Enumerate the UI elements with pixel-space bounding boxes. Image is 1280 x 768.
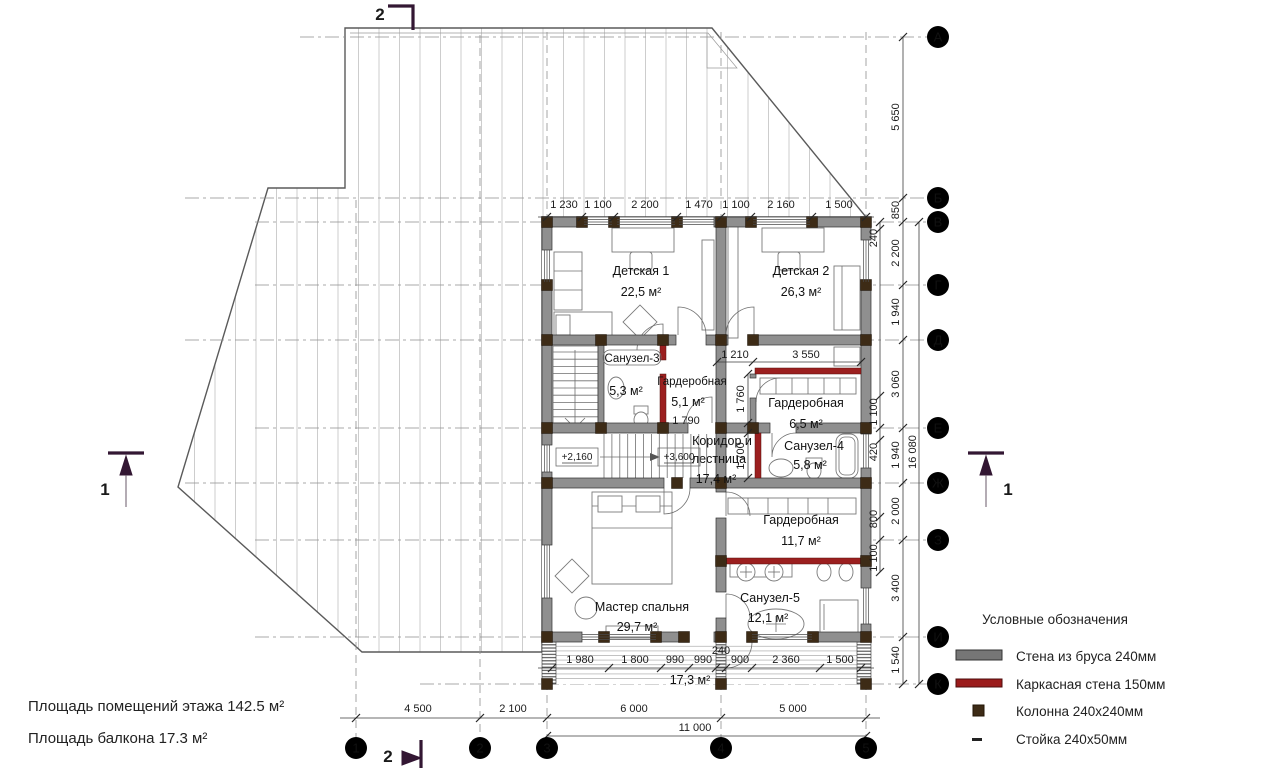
- column-240: [716, 423, 727, 434]
- room-area: 11,7 м²: [781, 534, 821, 548]
- column-240: [861, 679, 872, 690]
- room-label: Гардеробная: [763, 513, 839, 527]
- dim-label: 1 210: [721, 349, 749, 361]
- room-area: 29,7 м²: [617, 620, 658, 634]
- axis-bubble: 3: [536, 737, 558, 759]
- balcony-rail-left: [542, 642, 556, 684]
- column-240: [542, 478, 553, 489]
- column-240: [861, 217, 872, 228]
- dim-label: 2 200: [890, 239, 902, 267]
- area-notes: Площадь помещений этажа 142.5 м² Площадь…: [28, 698, 284, 747]
- dim-label: 240: [868, 229, 880, 247]
- axis-label: 3: [543, 741, 550, 756]
- column-240: [672, 478, 683, 489]
- wardrobe: [554, 252, 582, 310]
- room-label: Гардеробная: [657, 376, 727, 388]
- pillow: [556, 315, 570, 335]
- sofa: [834, 266, 860, 330]
- dim-label: 1 470: [685, 199, 713, 211]
- room-area: 6,5 м²: [789, 417, 823, 431]
- legend-item-label: Каркасная стена 150мм: [1016, 677, 1165, 692]
- section-marker-top: 2: [375, 5, 413, 30]
- section-label: 1: [1003, 480, 1012, 499]
- cabinet: [834, 347, 860, 366]
- toilet: [817, 563, 831, 581]
- axis-bubble: Ж: [927, 472, 949, 494]
- axis-column-bubbles: 1 2 3 4 5: [345, 737, 877, 759]
- column-240: [679, 632, 690, 643]
- dim-label: 900: [731, 654, 749, 666]
- shelf: [702, 240, 714, 330]
- dim-label: 1 980: [566, 654, 594, 666]
- axis-label: Г: [934, 278, 941, 293]
- room-area: 22,5 м²: [621, 285, 662, 299]
- room-area: 5,3 м²: [609, 384, 643, 398]
- room-area: 17,4 м²: [696, 472, 737, 486]
- dim-label: 2 200: [631, 199, 659, 211]
- section-marker-left: 1: [100, 453, 144, 507]
- axis-bubble: Е: [927, 417, 949, 439]
- desk: [762, 228, 824, 252]
- column-240: [861, 632, 872, 643]
- room-area: 5,1 м²: [671, 395, 705, 409]
- column-240: [716, 335, 727, 346]
- dim-label: 1 500: [826, 654, 854, 666]
- dim-label: 850: [890, 201, 902, 219]
- axis-bubble: 4: [710, 737, 732, 759]
- section-label: 2: [383, 747, 392, 766]
- column-240: [861, 335, 872, 346]
- closet-shelves: [728, 498, 856, 514]
- axis-label: Е: [934, 421, 943, 436]
- note-text: Площадь помещений этажа 142.5 м²: [28, 698, 284, 715]
- room-label: Санузел-3: [604, 353, 659, 365]
- round-table: [575, 597, 597, 619]
- dim-label: 990: [666, 654, 684, 666]
- dim-label: 16 080: [907, 435, 919, 469]
- room-label: Гардеробная: [768, 396, 844, 410]
- axis-label: Б: [934, 191, 943, 206]
- axis-label: В: [934, 215, 943, 230]
- legend-title: Условные обозначения: [982, 612, 1128, 627]
- axis-label: И: [933, 630, 942, 645]
- room-label: Детская 2: [773, 264, 830, 278]
- axis-label: 2: [476, 741, 483, 756]
- column-240: [716, 556, 727, 567]
- axis-label: З: [934, 533, 942, 548]
- dim-label: 1 230: [550, 199, 578, 211]
- elevation-label: +3,600: [664, 452, 695, 463]
- column-240: [542, 679, 553, 690]
- dim-label: 2 000: [890, 497, 902, 525]
- section-label: 1: [100, 480, 109, 499]
- timber-wall-swatch: [956, 650, 1002, 660]
- dim-label: 2 360: [772, 654, 800, 666]
- column-swatch: [973, 705, 984, 716]
- axis-bubble: 5: [855, 737, 877, 759]
- dim-label: 240: [712, 645, 730, 657]
- dim-label: 6 000: [620, 703, 648, 715]
- dim-label: 3 400: [890, 574, 902, 602]
- dim-label: 800: [868, 510, 880, 528]
- dim-label: 3 550: [792, 349, 820, 361]
- room-label: Санузел-4: [784, 439, 844, 453]
- dim-label: 1 100: [722, 199, 750, 211]
- dim-label: 5 000: [779, 703, 807, 715]
- axis-bubble: З: [927, 529, 949, 551]
- dim-label: 1 540: [890, 646, 902, 674]
- dim-label: 2 160: [767, 199, 795, 211]
- room-area: 26,3 м²: [781, 285, 822, 299]
- axis-label: 5: [862, 741, 869, 756]
- axis-label: К: [934, 677, 942, 692]
- column-240: [748, 335, 759, 346]
- dim-label: 3 060: [890, 370, 902, 398]
- legend-item-label: Стойка 240x50мм: [1016, 732, 1127, 747]
- dim-label: 5 650: [890, 103, 902, 131]
- column-240: [542, 217, 553, 228]
- dim-label: 1 940: [890, 298, 902, 326]
- column-240: [542, 335, 553, 346]
- dim-label: 1 500: [825, 199, 853, 211]
- section-marker-right: 1: [968, 453, 1013, 507]
- legend-item-label: Стена из бруса 240мм: [1016, 649, 1156, 664]
- column-240: [658, 335, 669, 346]
- column-240: [542, 423, 553, 434]
- axis-bubble: 1: [345, 737, 367, 759]
- pillow: [636, 496, 660, 512]
- axis-bubble: 2: [469, 737, 491, 759]
- room-note: 1 790: [672, 415, 700, 427]
- legend: Условные обозначения Стена из бруса 240м…: [956, 612, 1165, 747]
- stand-swatch: [972, 738, 982, 741]
- axis-label: Д: [934, 333, 943, 348]
- section-label: 2: [375, 5, 384, 24]
- room-label: Санузел-5: [740, 591, 800, 605]
- column-240: [596, 423, 607, 434]
- room-area: 5,8 м²: [793, 458, 827, 472]
- balcony-area: 17,3 м²: [670, 673, 711, 687]
- axis-bubble: И: [927, 626, 949, 648]
- right-dimension-chain: 5 650 850 2 200 1 940 3 060 1 940 2 000 …: [868, 103, 919, 674]
- section-marker-bottom: 2: [383, 740, 421, 768]
- balcony-rail-right: [857, 642, 871, 684]
- dim-label: 990: [694, 654, 712, 666]
- room-label: Детская 1: [613, 264, 670, 278]
- dim-label: 420: [868, 443, 880, 461]
- column-240: [716, 679, 727, 690]
- dim-label: 4 500: [404, 703, 432, 715]
- legend-item-label: Колонна 240x240мм: [1016, 704, 1143, 719]
- bidet: [839, 563, 853, 581]
- dim-label: 2 100: [499, 703, 527, 715]
- axis-bubble: К: [927, 673, 949, 695]
- axis-bubble: Г: [927, 274, 949, 296]
- dim-label: 1 800: [621, 654, 649, 666]
- axis-label: 1: [352, 741, 359, 756]
- column-240: [716, 632, 727, 643]
- column-240: [658, 423, 669, 434]
- room-label: Коридор и: [692, 434, 752, 448]
- sink: [769, 459, 793, 477]
- dim-label: 1 940: [890, 441, 902, 469]
- shower: [820, 600, 858, 634]
- axis-row-bubbles: А Б В Г Д Е Ж З И К: [927, 26, 949, 695]
- pillow: [598, 496, 622, 512]
- desk: [612, 228, 674, 252]
- axis-label: А: [934, 30, 943, 45]
- floor-plan-drawing: 1 210 3 550 1 760 1 700 Детская 1 22,5 м…: [0, 0, 1280, 768]
- dim-label: 1 100: [584, 199, 612, 211]
- axis-bubble: В: [927, 211, 949, 233]
- axis-label: Ж: [932, 476, 944, 491]
- column-240: [861, 478, 872, 489]
- dim-label: 1 100: [868, 398, 880, 426]
- dim-label: 1 760: [735, 385, 747, 413]
- column-240: [542, 632, 553, 643]
- room-area: 12,1 м²: [748, 611, 789, 625]
- column-240: [716, 217, 727, 228]
- note-text: Площадь балкона 17.3 м²: [28, 730, 207, 747]
- elevation-label: +2,160: [562, 452, 593, 463]
- column-240: [596, 335, 607, 346]
- frame-wall-swatch: [956, 679, 1002, 687]
- axis-bubble: А: [927, 26, 949, 48]
- dim-label: 11 000: [679, 722, 712, 734]
- dim-label: 1 100: [868, 544, 880, 572]
- axis-label: 4: [717, 741, 724, 756]
- axis-bubble: Д: [927, 329, 949, 351]
- axis-bubble: Б: [927, 187, 949, 209]
- room-label: Мастер спальня: [595, 600, 689, 614]
- bottom-grid-dimensions: 4 500 2 100 6 000 5 000 11 000: [404, 703, 807, 734]
